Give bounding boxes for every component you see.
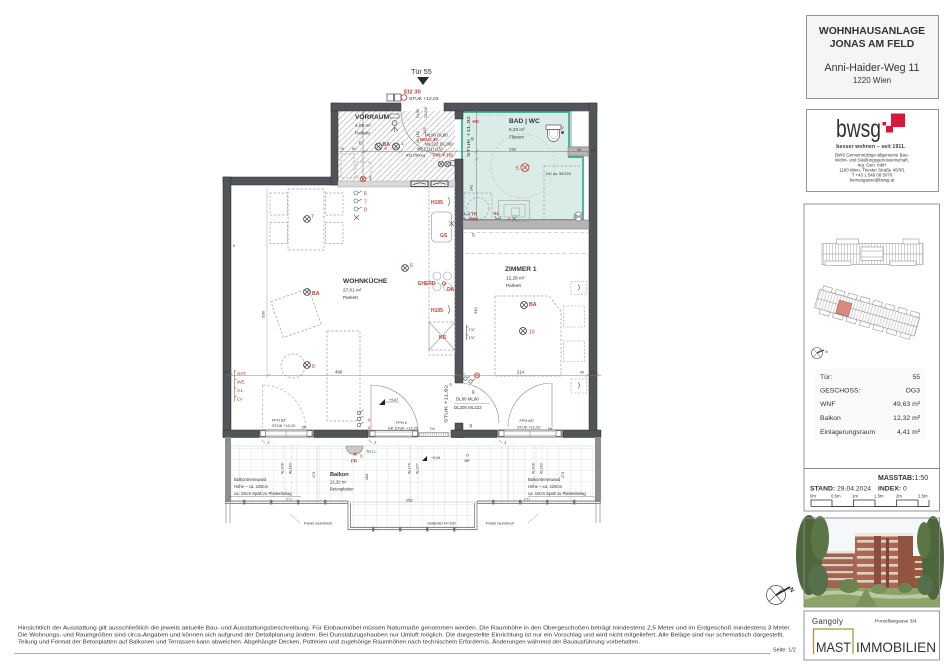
svg-text:29.04.2024: 29.04.2024 <box>837 486 871 493</box>
svg-text:Balkontrennwand: Balkontrennwand <box>234 477 267 482</box>
svg-text:Seite: 1/2: Seite: 1/2 <box>773 648 796 654</box>
svg-text:bwsg: bwsg <box>836 115 881 143</box>
svg-text:9: 9 <box>368 418 371 423</box>
svg-text:DL210: DL210 <box>423 106 428 118</box>
svg-text:12,28 m²: 12,28 m² <box>506 276 525 281</box>
svg-text:Parkett: Parkett <box>506 283 522 288</box>
svg-text:0.5m: 0.5m <box>831 494 841 499</box>
svg-text:Parkett: Parkett <box>343 295 359 300</box>
svg-text:STUK +12,20: STUK +12,20 <box>272 423 296 428</box>
svg-text:258: 258 <box>406 498 413 503</box>
svg-text:WL7 (11) (15): WL7 (11) (15) <box>417 147 443 152</box>
svg-text:6: 6 <box>410 263 413 269</box>
svg-text:BA: BA <box>312 291 320 297</box>
svg-text:6,33 m²: 6,33 m² <box>509 127 525 132</box>
svg-text:bernesgasse@bwsg.at: bernesgasse@bwsg.at <box>850 178 896 183</box>
svg-text:12,32 m²: 12,32 m² <box>330 480 347 485</box>
svg-text:1: 1 <box>369 176 372 182</box>
svg-text:FPH 83°: FPH 83° <box>520 418 535 423</box>
svg-text:+9,87: +9,87 <box>389 398 398 402</box>
svg-text:R23 Öffnung: R23 Öffnung <box>406 154 425 158</box>
svg-text:AL108: AL108 <box>281 463 285 474</box>
svg-text:6: 6 <box>364 191 367 197</box>
svg-text:Balkon: Balkon <box>820 415 841 422</box>
svg-text:13: 13 <box>472 233 476 237</box>
svg-text:DL90: DL90 <box>415 108 420 118</box>
svg-text:GESCHOSS:: GESCHOSS: <box>820 388 861 395</box>
svg-text:LV: LV <box>469 335 475 341</box>
svg-text:0: 0 <box>903 486 907 493</box>
svg-text:ZIMMER 1: ZIMMER 1 <box>505 266 537 273</box>
svg-text:27,01 m²: 27,01 m² <box>343 288 362 293</box>
svg-text:MAST: MAST <box>816 640 851 655</box>
svg-text:7: 7 <box>364 200 367 206</box>
svg-text:0m: 0m <box>810 494 816 499</box>
svg-text:Terr.L.: Terr.L. <box>366 449 378 454</box>
svg-text:K: K <box>233 243 236 248</box>
svg-text:BA: BA <box>529 302 537 308</box>
svg-text:AL108: AL108 <box>532 463 536 474</box>
svg-text:4,05 m²: 4,05 m² <box>355 123 371 128</box>
svg-text:DK: DK <box>302 426 307 430</box>
svg-text:AL143: AL143 <box>289 463 293 474</box>
svg-text:9: 9 <box>360 454 363 459</box>
svg-text:Fliesen: Fliesen <box>509 135 525 140</box>
svg-text:AL227: AL227 <box>416 463 420 474</box>
svg-text:KL: KL <box>494 211 500 216</box>
svg-text:10: 10 <box>529 330 535 336</box>
svg-text:DL80 ML90: DL80 ML90 <box>456 397 479 402</box>
svg-text:Teilung und Format der Betonpl: Teilung und Format der Betonplatten auf … <box>18 639 640 646</box>
svg-text:LV: LV <box>237 397 243 403</box>
svg-text:FPH 0: FPH 0 <box>396 420 408 425</box>
svg-text:538: 538 <box>261 311 266 318</box>
svg-text:AL143: AL143 <box>540 463 544 474</box>
svg-text:WE: WE <box>237 380 245 386</box>
svg-text:DK STUK +12,20: DK STUK +12,20 <box>388 425 419 430</box>
svg-text:LV: LV <box>469 327 475 333</box>
svg-text:MASSTAB:: MASSTAB: <box>878 475 914 482</box>
svg-text:2m: 2m <box>896 494 902 499</box>
svg-text:30: 30 <box>471 137 475 141</box>
svg-text:15: 15 <box>591 370 595 374</box>
svg-text:DA: DA <box>447 287 455 293</box>
svg-text:16: 16 <box>469 424 473 428</box>
svg-text:H105: H105 <box>431 308 443 314</box>
svg-text:25: 25 <box>359 141 363 145</box>
svg-text:FPH 83°: FPH 83° <box>272 418 287 423</box>
svg-text:7: 7 <box>311 214 314 220</box>
svg-text:Geländer H=100: Geländer H=100 <box>427 521 456 526</box>
svg-text:KS: KS <box>439 335 447 341</box>
svg-text:40: 40 <box>580 371 584 375</box>
svg-text:Betonplatten: Betonplatten <box>330 487 354 492</box>
svg-text:Tür:: Tür: <box>820 374 832 381</box>
svg-text:N: N <box>825 350 828 354</box>
svg-text:H105: H105 <box>431 200 443 206</box>
svg-text:6: 6 <box>450 382 453 387</box>
svg-text:15: 15 <box>591 148 595 152</box>
svg-text:IMMOBILIEN: IMMOBILIEN <box>856 640 936 655</box>
svg-text:GS: GS <box>440 233 448 239</box>
svg-text:INDEX:: INDEX: <box>878 486 901 493</box>
svg-text:1:50: 1:50 <box>915 475 929 482</box>
svg-text:WOHNKÜCHE: WOHNKÜCHE <box>343 276 388 285</box>
svg-text:Balkontrennwand: Balkontrennwand <box>528 477 561 482</box>
svg-text:Gangoly: Gangoly <box>812 617 843 626</box>
svg-text:WNF: WNF <box>820 401 835 408</box>
svg-text:1220 Wien: 1220 Wien <box>853 76 891 85</box>
svg-text:45: 45 <box>384 147 388 151</box>
svg-text:Parkett: Parkett <box>355 131 371 136</box>
svg-text:DU ca. 90/120: DU ca. 90/120 <box>546 171 572 176</box>
svg-text:8: 8 <box>364 208 367 214</box>
svg-text:15: 15 <box>340 147 344 151</box>
svg-text:+9,08: +9,08 <box>431 456 440 460</box>
svg-text:15: 15 <box>224 370 228 374</box>
svg-text:J: J <box>374 440 376 445</box>
svg-text:EI2 30: EI2 30 <box>404 90 421 96</box>
svg-text:WM: WM <box>470 217 478 222</box>
svg-text:OG3: OG3 <box>906 388 921 395</box>
svg-text:49,63 m²: 49,63 m² <box>893 401 921 408</box>
svg-text:BAD | WC: BAD | WC <box>509 118 540 125</box>
svg-text:besser wohnen – seit 1911.: besser wohnen – seit 1911. <box>836 144 906 150</box>
svg-text:Anni-Haider-Weg 11: Anni-Haider-Weg 11 <box>825 62 920 74</box>
svg-text:4,41 m²: 4,41 m² <box>897 429 921 436</box>
svg-text:498: 498 <box>335 370 343 375</box>
svg-text:55: 55 <box>912 374 920 381</box>
svg-text:12,32 m²: 12,32 m² <box>893 415 921 422</box>
svg-text:DL200 ML222: DL200 ML222 <box>454 405 482 410</box>
svg-text:141: 141 <box>470 185 474 191</box>
svg-text:Einlagerungsraum: Einlagerungsraum <box>820 429 875 436</box>
svg-text:Panel raumhoch: Panel raumhoch <box>304 521 332 526</box>
svg-text:DK: DK <box>548 427 553 431</box>
svg-text:BR: BR <box>465 459 471 463</box>
svg-text:Panel raumhoch: Panel raumhoch <box>486 521 514 526</box>
svg-text:J: J <box>504 440 506 445</box>
svg-text:Höhe ~ ca. 228cm: Höhe ~ ca. 228cm <box>528 484 563 489</box>
svg-text:Hinsichtlich der Ausstattung g: Hinsichtlich der Ausstattung gilt aussch… <box>18 626 791 632</box>
svg-text:ca. 10cm Spalt zu Plattenbelag: ca. 10cm Spalt zu Plattenbelag <box>234 491 292 496</box>
svg-text:WOHNHAUSANLAGE: WOHNHAUSANLAGE <box>819 26 925 37</box>
svg-text:Tür 55: Tür 55 <box>411 67 432 76</box>
svg-text:ca. 10cm Spalt zu Plattenbelag: ca. 10cm Spalt zu Plattenbelag <box>528 491 586 496</box>
svg-text:35: 35 <box>577 148 581 152</box>
svg-text:J: J <box>267 440 269 445</box>
svg-text:173: 173 <box>561 472 565 478</box>
svg-text:238: 238 <box>509 147 516 152</box>
svg-text:340: 340 <box>473 307 478 314</box>
svg-text:STUK +11,92: STUK +11,92 <box>444 384 449 423</box>
svg-text:Die Wohnungs- und Raumgrößen s: Die Wohnungs- und Raumgrößen sind circa-… <box>18 633 784 639</box>
svg-text:STUK +11,92: STUK +11,92 <box>466 115 471 157</box>
svg-text:STAND:: STAND: <box>810 486 835 493</box>
svg-text:V: V <box>561 125 564 130</box>
svg-text:STUK +12,20: STUK +12,20 <box>517 424 541 429</box>
svg-text:2.5m: 2.5m <box>918 494 928 499</box>
svg-text:1.5m: 1.5m <box>874 494 884 499</box>
svg-text:A1: A1 <box>237 388 243 394</box>
svg-text:EHERD: EHERD <box>418 281 436 287</box>
svg-text:SAT: SAT <box>237 371 246 377</box>
svg-text:FIX: FIX <box>430 427 436 431</box>
svg-text:4: 4 <box>508 217 511 222</box>
svg-text:62: 62 <box>352 147 356 151</box>
svg-text:HK: HK <box>473 119 480 124</box>
svg-text:FKL V 151: FKL V 151 <box>433 153 454 158</box>
svg-text:JONAS AM FELD: JONAS AM FELD <box>830 39 915 50</box>
svg-text:O: O <box>466 454 469 458</box>
svg-text:8: 8 <box>312 364 315 370</box>
svg-text:184: 184 <box>365 474 369 480</box>
svg-text:Porzellangasse 3/4: Porzellangasse 3/4 <box>875 619 917 625</box>
svg-text:90: 90 <box>472 390 476 394</box>
svg-text:5: 5 <box>516 166 519 172</box>
svg-text:214: 214 <box>517 370 525 375</box>
svg-text:8: 8 <box>368 426 371 431</box>
svg-text:Balkon: Balkon <box>330 472 349 478</box>
svg-text:1m: 1m <box>852 494 858 499</box>
svg-text:Höhe ~ ca. 228cm: Höhe ~ ca. 228cm <box>234 484 269 489</box>
svg-text:VORRAUM: VORRAUM <box>355 114 390 121</box>
svg-text:STUK +12,03: STUK +12,03 <box>409 96 439 102</box>
svg-text:AL174: AL174 <box>408 463 412 474</box>
svg-text:173: 173 <box>312 472 316 478</box>
svg-text:FR: FR <box>351 459 358 464</box>
